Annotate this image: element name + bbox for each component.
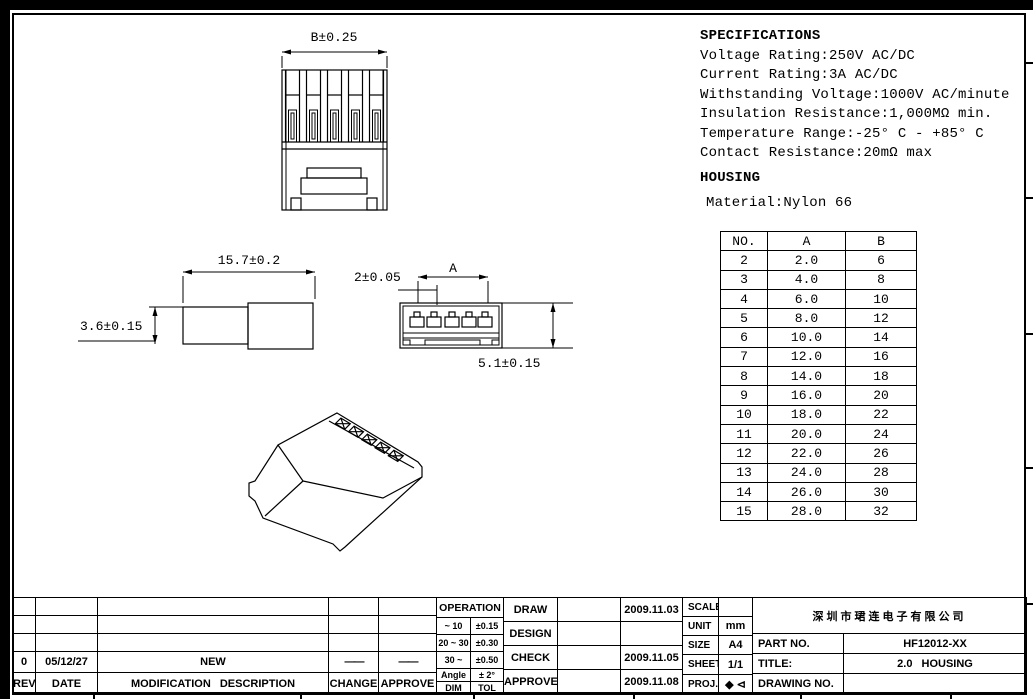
rev-value: 0 (13, 652, 36, 673)
table-header-row: NO. A B (721, 232, 917, 251)
margin-tick (800, 695, 802, 699)
design-date (621, 622, 683, 646)
part-no-label: PART NO. (753, 634, 844, 654)
col-header-no: NO. (721, 232, 768, 251)
table-cell: 24.0 (768, 463, 846, 482)
table-row: 1324.028 (721, 463, 917, 482)
col-header-a: A (768, 232, 846, 251)
table-cell: 13 (721, 463, 768, 482)
dimension-label-front-height: 5.1±0.15 (478, 356, 540, 371)
size-label: SIZE (683, 636, 719, 655)
margin-tick (1026, 467, 1033, 469)
table-cell: 3 (721, 270, 768, 289)
margin-tick (1026, 333, 1033, 335)
scan-edge-left (0, 0, 10, 699)
dimension-label-height: 3.6±0.15 (80, 319, 142, 334)
spec-line: Withstanding Voltage:1000V AC/minute (700, 86, 1032, 106)
margin-tick (1026, 197, 1033, 199)
material-line: Material:Nylon 66 (700, 194, 1032, 214)
table-cell: 30 (846, 482, 917, 501)
dimension-label-A: A (449, 261, 457, 276)
tol-range: 20 ~ 30 (437, 635, 471, 652)
table-cell: 28 (846, 463, 917, 482)
table-cell: 5 (721, 309, 768, 328)
table-cell: 12 (846, 309, 917, 328)
side-view-drawing: 15.7±0.2 3.6±0.15 (75, 248, 335, 360)
isometric-view-drawing (240, 395, 460, 563)
table-row: 22.06 (721, 251, 917, 270)
table-row: 1222.026 (721, 444, 917, 463)
change-header: CHANGE (329, 673, 379, 695)
table-row: 712.016 (721, 347, 917, 366)
draw-label: DRAW (504, 598, 558, 622)
table-cell: 4 (721, 289, 768, 308)
tol-value: ±0.30 (471, 635, 504, 652)
table-cell: 22.0 (768, 444, 846, 463)
draw-date: 2009.11.03 (621, 598, 683, 622)
table-cell: 14 (846, 328, 917, 347)
table-cell: 10.0 (768, 328, 846, 347)
table-cell: 8 (721, 367, 768, 386)
rev-change: —— (329, 652, 379, 673)
table-cell: 28.0 (768, 502, 846, 521)
approve-label: APPROVE (504, 670, 558, 695)
rev-description: NEW (98, 652, 329, 673)
table-cell: 26 (846, 444, 917, 463)
revision-header-row: REV DATE MODIFICATION DESCRIPTION CHANGE… (13, 673, 437, 695)
table-row: 814.018 (721, 367, 917, 386)
scan-edge-top (0, 0, 1033, 10)
table-cell: 16.0 (768, 386, 846, 405)
table-row: 34.08 (721, 270, 917, 289)
rev-empty-cell (13, 598, 36, 616)
table-cell: 6.0 (768, 289, 846, 308)
table-cell: 20.0 (768, 424, 846, 443)
table-cell: 22 (846, 405, 917, 424)
approve-name (558, 670, 621, 695)
tol-value: ±0.50 (471, 652, 504, 669)
company-name: 深圳市珺连电子有限公司 (753, 598, 1027, 634)
table-cell: 12.0 (768, 347, 846, 366)
date-header: DATE (36, 673, 98, 695)
table-row: 1528.032 (721, 502, 917, 521)
table-cell: 6 (846, 251, 917, 270)
table-cell: 10 (721, 405, 768, 424)
top-view-drawing: B±0.25 (265, 26, 400, 218)
tol-angle-label: Angle (437, 669, 471, 682)
table-cell: 14 (721, 482, 768, 501)
table-cell: 20 (846, 386, 917, 405)
revision-row: 0 05/12/27 NEW —— —— (13, 652, 437, 673)
spec-line: Temperature Range:-25° C - +85° C (700, 125, 1032, 145)
table-cell: 4.0 (768, 270, 846, 289)
table-row: 610.014 (721, 328, 917, 347)
table-cell: 2 (721, 251, 768, 270)
approve-date: 2009.11.08 (621, 670, 683, 695)
rev-header: REV (13, 673, 36, 695)
table-cell: 9 (721, 386, 768, 405)
table-row: 1426.030 (721, 482, 917, 501)
table-row: 1120.024 (721, 424, 917, 443)
unit-value: mm (719, 617, 753, 636)
spec-line: Insulation Resistance:1,000MΩ min. (700, 105, 1032, 125)
margin-tick (633, 695, 635, 699)
drawing-no-label: DRAWING NO. (753, 674, 844, 695)
table-row: 1018.022 (721, 405, 917, 424)
size-table-body: 22.0634.0846.01058.012610.014712.016814.… (721, 251, 917, 521)
table-cell: 8.0 (768, 309, 846, 328)
tolerance-table: OPERATION ~ 10 ±0.15 20 ~ 30 ±0.30 30 ~ … (436, 597, 504, 695)
tol-angle-value: ± 2° (471, 669, 504, 682)
table-cell: 6 (721, 328, 768, 347)
table-cell: 8 (846, 270, 917, 289)
dimension-label-length: 15.7±0.2 (218, 253, 280, 268)
margin-tick (300, 695, 302, 699)
table-cell: 10 (846, 289, 917, 308)
margin-tick (1026, 603, 1033, 605)
draw-name (558, 598, 621, 622)
check-date: 2009.11.05 (621, 646, 683, 670)
revision-table: 0 05/12/27 NEW —— —— REV DATE MODIFICATI… (12, 597, 437, 695)
table-cell: 18 (846, 367, 917, 386)
table-row: 46.010 (721, 289, 917, 308)
tol-value: ±0.15 (471, 618, 504, 635)
desc-header: MODIFICATION DESCRIPTION (98, 673, 329, 695)
specifications-block: SPECIFICATIONS Voltage Rating:250V AC/DC… (700, 27, 1032, 214)
margin-tick (1026, 62, 1033, 64)
scale-value (719, 598, 753, 617)
dim-header: DIM (437, 682, 471, 695)
part-no-value: HF12012-XX (844, 634, 1027, 654)
dimension-label-B: B±0.25 (311, 30, 358, 45)
table-cell: 16 (846, 347, 917, 366)
table-cell: 12 (721, 444, 768, 463)
title-label: TITLE: (753, 654, 844, 674)
design-name (558, 622, 621, 646)
margin-tick (473, 695, 475, 699)
rev-date: 05/12/27 (36, 652, 98, 673)
title-block-table: 深圳市珺连电子有限公司 PART NO. HF12012-XX TITLE: 2… (752, 597, 1027, 695)
table-cell: 24 (846, 424, 917, 443)
table-row: 58.012 (721, 309, 917, 328)
projection-symbol-icon: ◆ ⊲ (719, 675, 753, 695)
sheet-label: SHEET (683, 655, 719, 675)
housing-title: HOUSING (700, 169, 1032, 189)
table-row: 916.020 (721, 386, 917, 405)
approve-header: APPROVE (379, 673, 437, 695)
table-cell: 26.0 (768, 482, 846, 501)
spec-line: Current Rating:3A AC/DC (700, 66, 1032, 86)
sheet-value: 1/1 (719, 655, 753, 675)
engineering-drawing-sheet: B±0.25 15.7±0.2 (0, 0, 1033, 699)
title-value: 2.0 HOUSING (844, 654, 1027, 674)
check-label: CHECK (504, 646, 558, 670)
spec-line: Contact Resistance:20mΩ max (700, 144, 1032, 164)
col-header-b: B (846, 232, 917, 251)
size-selection-table: NO. A B 22.0634.0846.01058.012610.014712… (720, 231, 917, 521)
approval-table: DRAW 2009.11.03 DESIGN CHECK 2009.11.05 … (503, 597, 683, 695)
margin-tick (950, 695, 952, 699)
unit-label: UNIT (683, 617, 719, 636)
tol-range: 30 ~ (437, 652, 471, 669)
table-cell: 2.0 (768, 251, 846, 270)
proj-label: PROJ. (683, 675, 719, 695)
margin-tick (93, 695, 95, 699)
table-cell: 18.0 (768, 405, 846, 424)
scale-label: SCALE (683, 598, 719, 617)
dimension-label-pitch: 2±0.05 (354, 270, 401, 285)
table-cell: 11 (721, 424, 768, 443)
table-cell: 15 (721, 502, 768, 521)
drawing-no-value (844, 674, 1027, 695)
tol-range: ~ 10 (437, 618, 471, 635)
table-cell: 32 (846, 502, 917, 521)
sheet-info-table: SCALE UNIT mm SIZE A4 SHEET 1/1 PROJ. ◆ … (682, 597, 753, 695)
table-cell: 7 (721, 347, 768, 366)
check-name (558, 646, 621, 670)
design-label: DESIGN (504, 622, 558, 646)
spec-line: Voltage Rating:250V AC/DC (700, 47, 1032, 67)
size-value: A4 (719, 636, 753, 655)
rev-approve: —— (379, 652, 437, 673)
front-view-drawing: A 2±0.05 5.1±0.15 (350, 253, 585, 380)
table-cell: 14.0 (768, 367, 846, 386)
tolerance-title: OPERATION (437, 598, 504, 618)
specifications-title: SPECIFICATIONS (700, 27, 1032, 47)
tol-header: TOL (471, 682, 504, 695)
